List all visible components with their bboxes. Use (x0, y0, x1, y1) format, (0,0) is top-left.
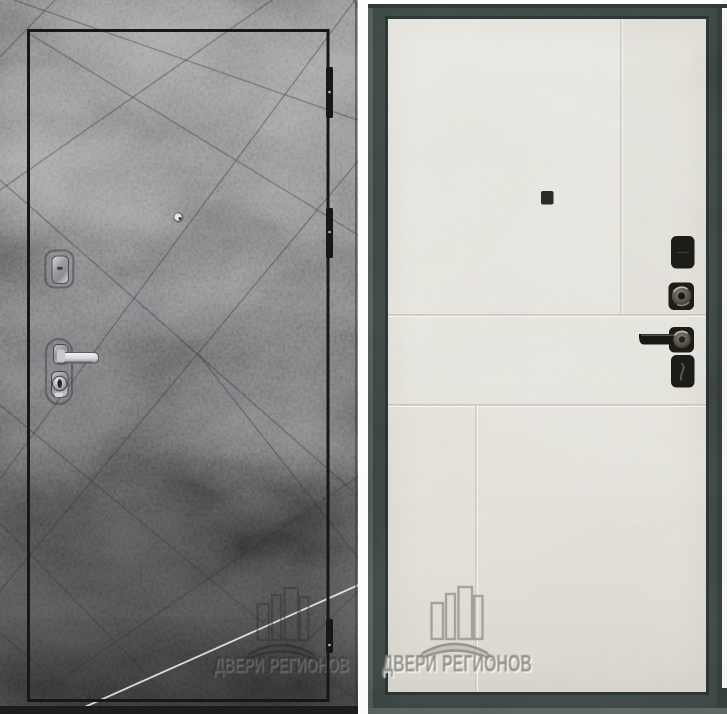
svg-text:ДВЕРИ: ДВЕРИ (382, 651, 437, 678)
svg-text:РЕГИОНОВ: РЕГИОНОВ (442, 651, 532, 678)
svg-text:ДВЕРИ: ДВЕРИ (214, 653, 264, 677)
svg-text:РЕГИОНОВ: РЕГИОНОВ (269, 653, 349, 677)
